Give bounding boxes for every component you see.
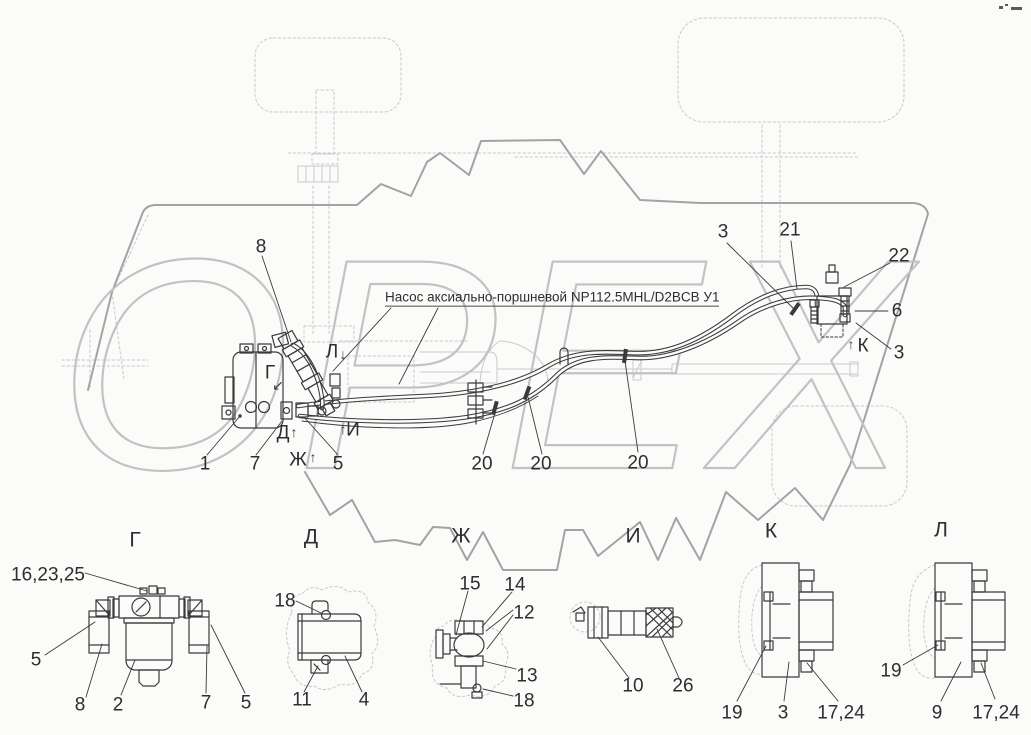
detail-k-callout-3: 3	[778, 704, 789, 723]
parts-diagram-page: ОРЕХ	[0, 0, 1031, 735]
corner-print-marks	[999, 4, 1022, 10]
detail-g-callout-8: 8	[75, 696, 86, 715]
detail-zh-callout-12: 12	[513, 604, 534, 623]
detail-zh-callout-15: 15	[459, 575, 480, 594]
detail-g-drawing	[89, 586, 209, 686]
detail-k-callout-19: 19	[721, 704, 742, 723]
detail-g-callout-2: 2	[113, 696, 124, 715]
callout-5: 5	[333, 455, 344, 474]
detail-header-k: К	[765, 521, 777, 542]
view-mark-d: Д	[277, 424, 290, 443]
callout-1: 1	[200, 455, 211, 474]
detail-header-g: Г	[129, 530, 140, 551]
callout-21: 21	[779, 221, 800, 240]
detail-g-callout-7: 7	[201, 694, 212, 713]
up-arrow-icon: ↑	[340, 422, 347, 436]
callout-3a: 3	[718, 223, 729, 242]
callout-20c: 20	[627, 454, 648, 473]
detail-d-callout-18: 18	[274, 592, 295, 611]
detail-zh-callout-13: 13	[516, 667, 537, 686]
detail-zh-drawing	[430, 620, 508, 698]
detail-l-callout-9: 9	[932, 704, 943, 723]
leader-lines-detail-l	[903, 645, 995, 701]
up-arrow-icon: ↑	[291, 425, 298, 439]
callout-6: 6	[892, 302, 903, 321]
detail-l-drawing	[909, 563, 1005, 678]
diag-arrow-icon: ↙	[272, 378, 284, 392]
detail-l-callout-17-24: 17,24	[972, 704, 1020, 723]
callout-20a: 20	[471, 455, 492, 474]
callout-8: 8	[256, 238, 267, 257]
up-arrow-icon: ↑	[310, 450, 317, 464]
detail-g-callout-5-right: 5	[241, 694, 252, 713]
detail-header-i: И	[625, 526, 640, 547]
diagram-canvas: ОРЕХ	[0, 0, 1031, 735]
pump-label: Насос аксиально-поршневой NP112.5MHL/D2B…	[385, 290, 719, 307]
view-mark-l: Л	[326, 343, 338, 362]
detail-i-drawing	[570, 602, 682, 638]
leader-lines-detail-g	[45, 573, 245, 697]
leader-lines-detail-k	[737, 646, 838, 701]
callout-22: 22	[888, 247, 909, 266]
detail-i-callout-10: 10	[622, 677, 643, 696]
detail-zh-callout-14: 14	[504, 576, 525, 595]
detail-d-callout-4: 4	[359, 691, 370, 710]
view-mark-zh: Ж	[289, 451, 307, 470]
callout-20b: 20	[530, 455, 551, 474]
leader-lines-detail-d	[296, 601, 362, 692]
detail-header-d: Д	[304, 527, 318, 548]
detail-header-l: Л	[934, 520, 948, 541]
detail-l-callout-19: 19	[880, 662, 901, 681]
watermark-text: ОРЕХ	[58, 196, 920, 532]
view-mark-i: И	[346, 421, 360, 440]
detail-zh-callout-18: 18	[513, 692, 534, 711]
detail-k-drawing	[739, 563, 833, 677]
up-arrow-icon: ↑	[848, 337, 855, 351]
down-arrow-icon: ↓	[340, 347, 347, 361]
detail-d-drawing	[286, 586, 377, 689]
callout-7: 7	[250, 455, 261, 474]
detail-g-callout-5-left: 5	[31, 651, 42, 670]
detail-header-zh: Ж	[451, 526, 470, 547]
detail-k-callout-17-24: 17,24	[817, 704, 865, 723]
detail-d-callout-11: 11	[292, 691, 312, 710]
view-mark-k: К	[857, 337, 868, 356]
detail-g-callout-16-23-25: 16,23,25	[11, 566, 85, 585]
callout-3b: 3	[894, 344, 905, 363]
leader-lines-detail-zh	[456, 591, 516, 696]
detail-i-callout-26: 26	[672, 677, 693, 696]
leader-lines-detail-i	[598, 629, 679, 678]
